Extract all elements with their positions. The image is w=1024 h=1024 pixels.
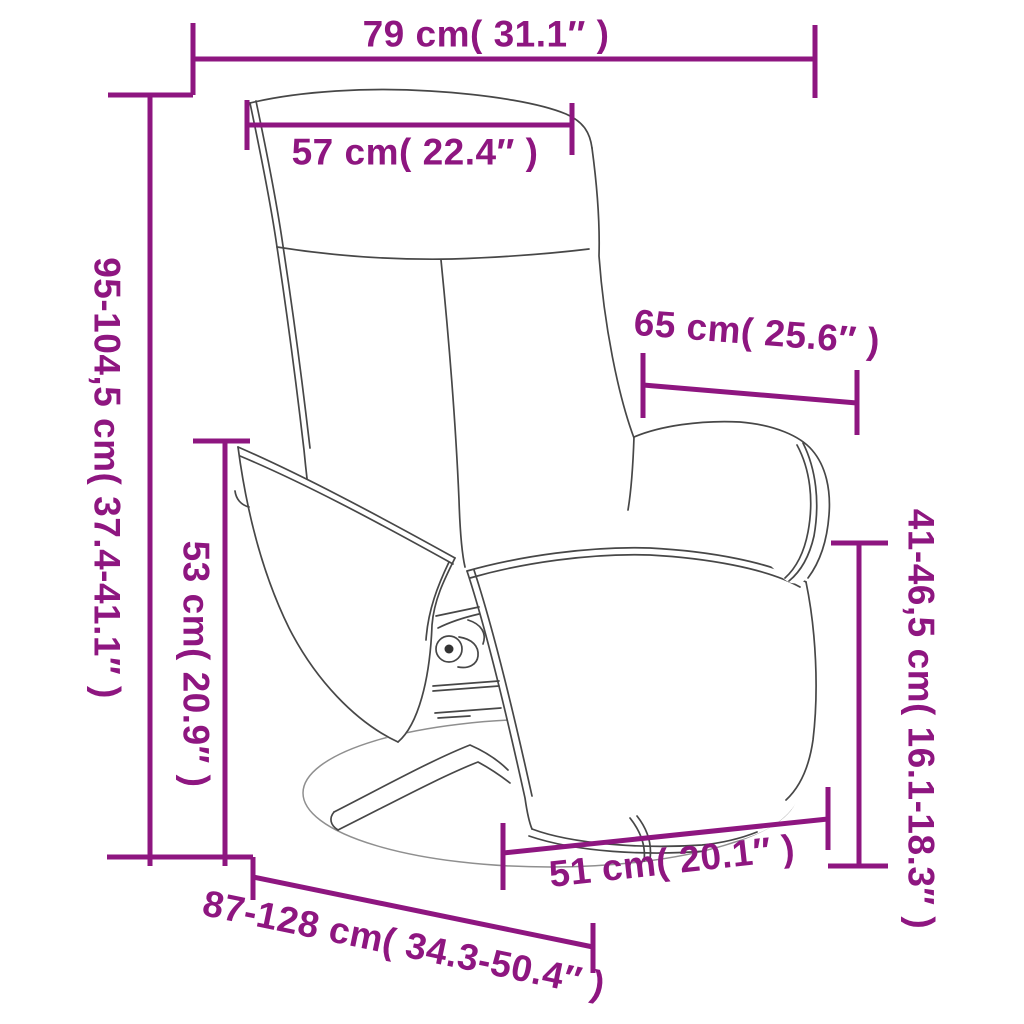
dimension-backrest-depth: 65 cm( 25.6″ ) (632, 302, 881, 435)
overall-depth-label: 87-128 cm( 34.3-50.4″ ) (199, 882, 609, 1005)
dimension-overall-width: 79 cm( 31.1″ ) (193, 14, 815, 99)
backrest-depth-label: 65 cm( 25.6″ ) (632, 302, 881, 362)
dimension-backrest-width: 57 cm( 22.4″ ) (247, 100, 572, 173)
seat-height-label: 53 cm( 20.9″ ) (176, 541, 217, 788)
backrest-width-label: 57 cm( 22.4″ ) (292, 132, 539, 173)
dimension-diagram: 79 cm( 31.1″ ) 57 cm( 22.4″ ) 95-104,5 c… (0, 0, 1024, 1024)
dimension-overall-depth: 87-128 cm( 34.3-50.4″ ) (199, 857, 609, 1006)
dimension-seat-height: 53 cm( 20.9″ ) (176, 441, 251, 866)
dimension-overall-height: 95-104,5 cm( 37.4-41.1″ ) (87, 95, 254, 866)
footrest-bar (331, 745, 510, 830)
armrest-height-label: 41-46,5 cm( 16.1-18.3″ ) (901, 509, 942, 930)
seat (467, 547, 816, 861)
chair-illustration (235, 90, 829, 868)
overall-height-label: 95-104,5 cm( 37.4-41.1″ ) (87, 257, 128, 699)
overall-width-label: 79 cm( 31.1″ ) (363, 14, 610, 55)
left-armrest (235, 447, 455, 742)
dimension-armrest-height: 41-46,5 cm( 16.1-18.3″ ) (828, 509, 942, 930)
